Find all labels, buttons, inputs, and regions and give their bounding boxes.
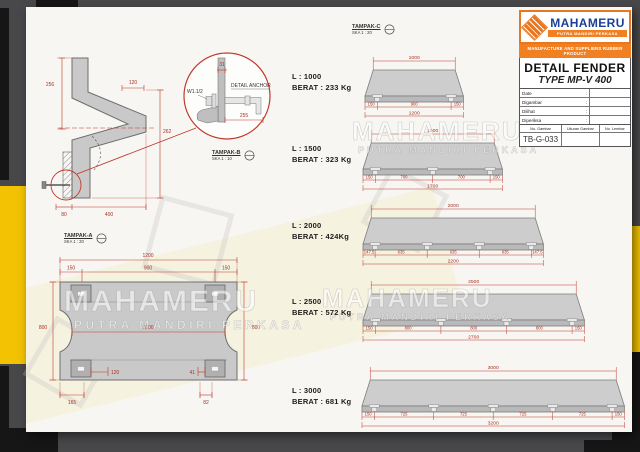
deco-black-bar-left-upper (0, 8, 9, 180)
svg-text:700: 700 (400, 174, 408, 179)
svg-text:165: 165 (68, 400, 77, 406)
title-block: MAHAMERU PUTRA MANDIRI PERKASA MANUFACTU… (519, 10, 631, 147)
svg-text:900: 900 (411, 101, 419, 106)
svg-text:1200: 1200 (409, 110, 420, 116)
svg-text:147.5: 147.5 (364, 249, 375, 254)
svg-text:1200: 1200 (142, 253, 153, 259)
svg-text:1000: 1000 (142, 325, 153, 331)
plan-view: 1200 150 900 150 1000 800 800 (36, 232, 286, 432)
svg-text:800: 800 (470, 325, 478, 330)
svg-text:635: 635 (450, 249, 458, 254)
svg-text:800: 800 (39, 325, 48, 331)
wall-hatch (63, 152, 72, 198)
svg-text:256: 256 (46, 82, 55, 88)
drawing-subtitle: TYPE MP-V 400 (520, 75, 630, 86)
view-ref-symbol (96, 233, 107, 244)
title-block-footer: No. Gambar Ukuran Gambar No. Lembar TB-G… (519, 125, 631, 147)
svg-text:800: 800 (252, 325, 261, 331)
svg-text:120: 120 (111, 370, 120, 376)
svg-text:2500: 2500 (468, 279, 479, 285)
svg-text:1000: 1000 (409, 55, 420, 61)
brand-name: MAHAMERU (550, 17, 625, 30)
fender-label-3000: L : 3000 BERAT : 681 Kg (292, 385, 351, 407)
fender-top-view-2000: 2000147.5635635635147.52200 (351, 202, 555, 268)
svg-text:150: 150 (67, 266, 76, 272)
svg-text:725: 725 (579, 411, 587, 416)
svg-text:DETAIL ANCHOR: DETAIL ANCHOR (231, 83, 271, 89)
svg-text:41: 41 (189, 370, 195, 376)
svg-text:82: 82 (203, 400, 209, 406)
svg-text:800: 800 (536, 325, 544, 330)
svg-text:31: 31 (219, 62, 225, 68)
svg-text:W1.1/2: W1.1/2 (187, 89, 203, 95)
drawing-number: TB-G-033 (520, 133, 562, 146)
svg-text:150: 150 (222, 266, 231, 272)
svg-text:120: 120 (129, 80, 138, 86)
brand-subtitle: PUTRA MANDIRI PERKASA (548, 30, 627, 37)
section-view: 256 120 262 80 400 31 DETAIL ANCHOR W1.1… (36, 44, 286, 229)
svg-text:2000: 2000 (448, 203, 459, 209)
deco-yellow-bar-left (0, 186, 27, 364)
svg-text:725: 725 (519, 411, 527, 416)
deco-black-bar-left-lower (0, 366, 9, 430)
svg-text:635: 635 (398, 249, 406, 254)
svg-text:150: 150 (366, 174, 374, 179)
svg-text:3200: 3200 (488, 420, 499, 426)
svg-text:150: 150 (493, 174, 501, 179)
fender-top-view-3000: 30001507257257257251503200 (350, 364, 636, 430)
svg-text:150: 150 (366, 325, 374, 330)
svg-text:1500: 1500 (427, 128, 438, 134)
brand-tagline: MANUFACTURE AND SUPPLIERS RUBBER PRODUCT (519, 44, 631, 58)
svg-text:900: 900 (144, 266, 153, 272)
view-label-tampak-b: TAMPAK-B SKA 1 : 10 (212, 150, 255, 161)
company-logo: MAHAMERU PUTRA MANDIRI PERKASA (519, 10, 631, 44)
fender-top-view-1500: 15001507007001501700 (351, 127, 514, 193)
svg-text:147.5: 147.5 (532, 249, 543, 254)
mahameru-logo-icon (521, 14, 548, 41)
drawing-sheet-canvas: 256 120 262 80 400 31 DETAIL ANCHOR W1.1… (0, 0, 640, 452)
fender-label-1500: L : 1500 BERAT : 323 Kg (292, 143, 351, 165)
svg-text:1700: 1700 (427, 183, 438, 189)
svg-text:635: 635 (502, 249, 510, 254)
svg-text:150: 150 (454, 101, 462, 106)
svg-text:800: 800 (405, 325, 413, 330)
view-label-tampak-a: TAMPAK-A SKA 1 : 20 (64, 233, 107, 244)
svg-text:150: 150 (615, 411, 623, 416)
svg-text:2200: 2200 (448, 258, 459, 264)
detail-anchor-circle (184, 53, 270, 139)
view-label-tampak-c: TAMPAK-C SKA 1 : 20 (352, 24, 395, 35)
svg-text:700: 700 (458, 174, 466, 179)
view-ref-symbol (384, 24, 395, 35)
svg-text:262: 262 (163, 129, 172, 135)
svg-text:2700: 2700 (468, 334, 479, 340)
svg-text:255: 255 (240, 113, 249, 119)
fender-label-2500: L : 2500 BERAT : 572 Kg (292, 296, 351, 318)
fender-top-view-2500: 25001508008008001502700 (351, 278, 596, 344)
svg-text:150: 150 (575, 325, 583, 330)
view-ref-symbol (244, 150, 255, 161)
svg-text:725: 725 (460, 411, 468, 416)
title-block-fields: Date: Digambar: Dilihat: Diperiksa: (519, 89, 631, 125)
svg-text:400: 400 (105, 212, 114, 218)
svg-text:3000: 3000 (488, 365, 499, 371)
svg-text:725: 725 (401, 411, 409, 416)
svg-text:150: 150 (365, 411, 373, 416)
deco-black-bar-bottom-right (584, 440, 640, 452)
fender-label-1000: L : 1000 BERAT : 233 Kg (292, 71, 351, 93)
svg-text:80: 80 (61, 212, 67, 218)
fender-label-2000: L : 2000 BERAT : 424Kg (292, 220, 349, 242)
drawing-title: DETAIL FENDER (520, 61, 630, 75)
svg-text:150: 150 (368, 101, 376, 106)
fender-top-view-1000: 10001509001501200 (353, 54, 475, 120)
